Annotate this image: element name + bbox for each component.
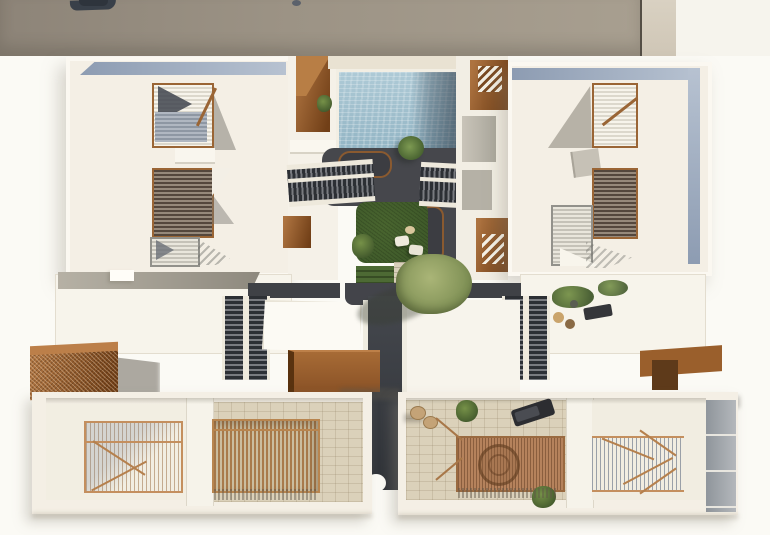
lower-right-wall-shadow — [406, 398, 706, 404]
garden-pouf-3 — [405, 226, 415, 234]
deck-fence-shadow — [458, 488, 558, 498]
rooftop-unit-top — [79, 0, 108, 6]
grass-steps — [356, 266, 394, 283]
palm-icon — [398, 136, 424, 160]
deck-pergola — [456, 436, 565, 492]
render-canvas: Aerial top-down 3D architectural render … — [0, 0, 770, 535]
terrace-round-table-2 — [565, 319, 575, 329]
corten-canopy-left-inner — [288, 350, 380, 392]
timber-pergola-left — [84, 421, 183, 493]
courtyard-stair-left — [287, 159, 376, 207]
fence-brace — [623, 457, 673, 485]
lower-right-east-wall — [706, 400, 736, 512]
patio-plant-icon — [456, 400, 478, 422]
timber-pergola-right — [212, 419, 320, 493]
center-roof-volume — [262, 300, 362, 352]
lower-right-divider-wall — [566, 398, 594, 508]
pergola-brace — [91, 461, 147, 492]
lower-left-wall-shadow — [46, 398, 363, 404]
pergola-fence-shadow — [214, 489, 318, 500]
roof-table — [110, 270, 134, 281]
pergola-rail — [86, 441, 181, 443]
neighbor-wall — [642, 0, 676, 56]
stair-run — [225, 296, 243, 380]
corten-box-d-stair — [482, 234, 504, 264]
slat-fence-right — [592, 436, 684, 492]
upper-right-north-band — [512, 68, 700, 80]
lower-left-divider-wall — [186, 398, 214, 506]
rooftop-vent-icon — [292, 0, 301, 6]
pergola-rail — [214, 429, 318, 431]
roof-bridge-left — [175, 148, 215, 164]
upper-right-east-band — [688, 68, 700, 264]
hanging-chair-inner — [488, 454, 510, 476]
garden-pouf-1 — [394, 235, 409, 247]
terrace-round-table-1 — [553, 312, 564, 323]
gray-volume-2 — [462, 170, 492, 210]
skylight-louver-e — [592, 168, 638, 239]
gray-volume-1 — [462, 116, 496, 162]
stair-run — [529, 296, 547, 380]
corten-box-c-stair — [478, 66, 502, 92]
corten-box-b — [283, 216, 311, 248]
lounger-pad — [514, 405, 540, 422]
facade-shadow-left — [58, 272, 260, 289]
ground-shadow-left — [32, 513, 372, 518]
pool-deck-north — [328, 56, 460, 69]
canopy-right-dark-box — [652, 360, 678, 390]
terrace-pot — [570, 300, 578, 308]
skylight-louver-b — [152, 168, 214, 238]
neighbor-wall-light — [676, 0, 770, 56]
fence-brace — [602, 438, 655, 461]
ground-shadow-right — [398, 514, 738, 519]
upper-left-north-band — [80, 62, 286, 75]
pergola-brace — [92, 440, 145, 475]
